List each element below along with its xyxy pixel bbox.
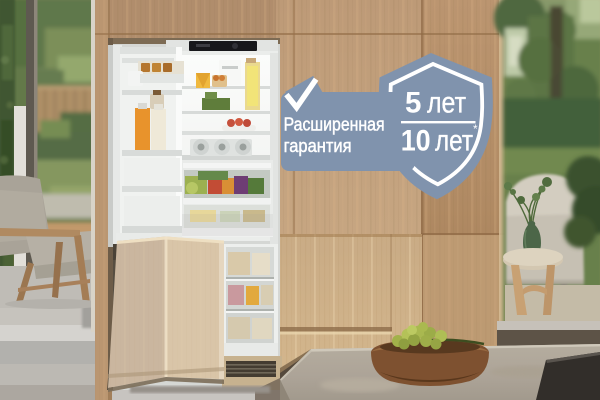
svg-text:Расширенная: Расширенная xyxy=(284,115,385,135)
svg-text:*: * xyxy=(473,122,478,136)
svg-text:лет: лет xyxy=(427,86,466,119)
svg-text:лет: лет xyxy=(435,124,473,157)
svg-text:5: 5 xyxy=(405,86,421,119)
svg-text:гарантия: гарантия xyxy=(284,136,352,156)
svg-text:10: 10 xyxy=(401,124,431,157)
